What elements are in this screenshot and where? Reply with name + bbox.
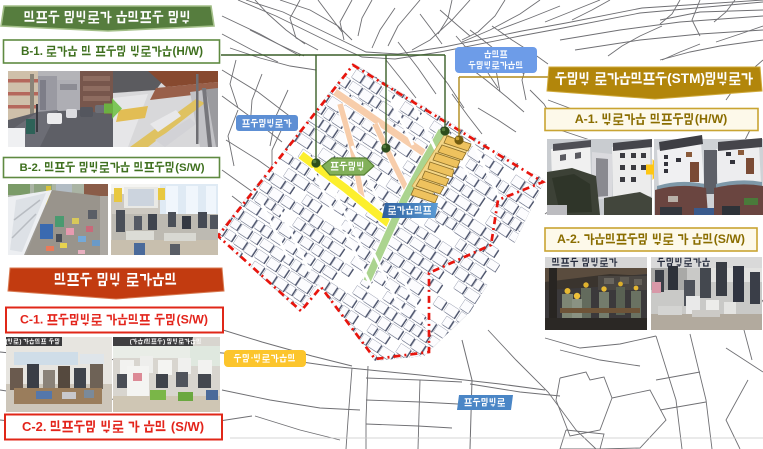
svg-text:·: · <box>251 353 254 363</box>
svg-text:(S/W): (S/W) <box>171 419 204 434</box>
svg-text:A-1.: A-1. <box>575 112 598 126</box>
svg-text:A-2.: A-2. <box>557 232 580 246</box>
svg-text:(S/W): (S/W) <box>177 313 209 327</box>
svg-text:): ) <box>19 338 21 345</box>
svg-text:): ) <box>163 338 165 345</box>
svg-text:B-2.: B-2. <box>20 162 42 174</box>
svg-text:(STM): (STM) <box>667 71 705 86</box>
svg-text:C-2.: C-2. <box>22 419 47 434</box>
svg-text:C-1.: C-1. <box>20 313 43 327</box>
svg-text:(H/W): (H/W) <box>173 45 204 58</box>
svg-text:(S/W): (S/W) <box>175 162 204 174</box>
svg-text:(H/W): (H/W) <box>695 112 727 126</box>
svg-text:B-1.: B-1. <box>21 45 43 58</box>
svg-text:(S/W): (S/W) <box>714 232 745 246</box>
svg-text:/: / <box>144 338 146 345</box>
